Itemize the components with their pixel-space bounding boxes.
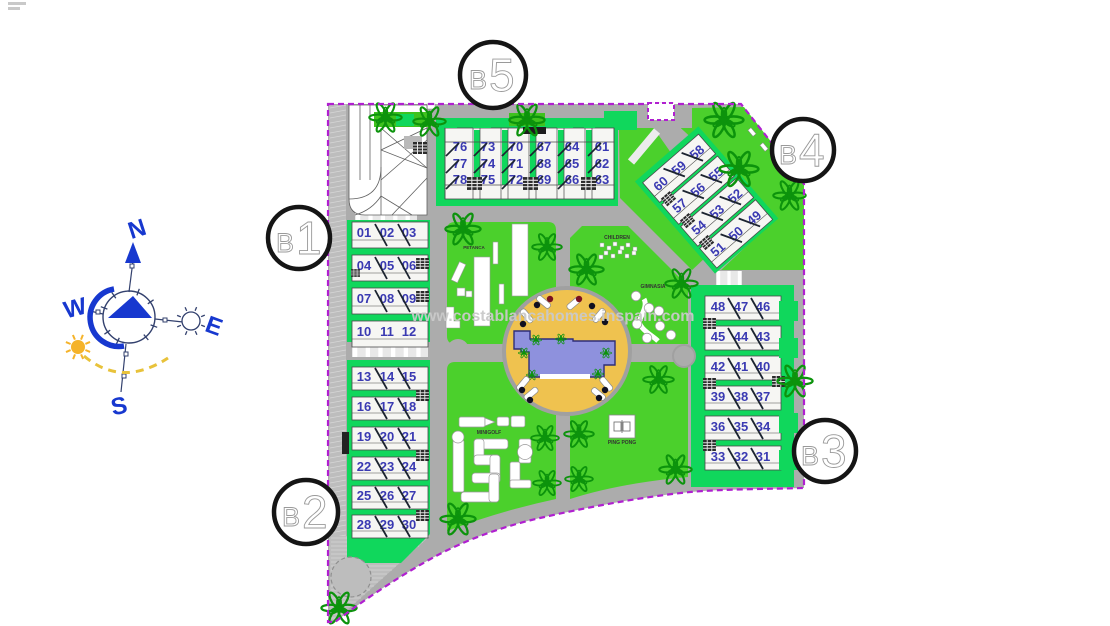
- svg-text:03: 03: [402, 225, 416, 240]
- svg-text:B: B: [801, 441, 819, 471]
- svg-text:48: 48: [711, 299, 725, 314]
- svg-text:01: 01: [357, 225, 371, 240]
- svg-text:5: 5: [489, 49, 515, 101]
- svg-text:4: 4: [799, 124, 825, 176]
- svg-text:PING PONG: PING PONG: [608, 440, 636, 446]
- svg-text:www.costablancahomes.inspain.c: www.costablancahomes.inspain.com: [410, 308, 694, 325]
- svg-text:33: 33: [711, 449, 725, 464]
- svg-text:B: B: [779, 140, 797, 170]
- svg-text:12: 12: [402, 324, 416, 339]
- svg-text:19: 19: [357, 429, 371, 444]
- svg-text:2: 2: [302, 486, 328, 538]
- svg-text:3: 3: [821, 425, 847, 477]
- svg-text:13: 13: [357, 369, 371, 384]
- svg-text:MINIGOLF: MINIGOLF: [477, 430, 501, 436]
- svg-text:B: B: [276, 228, 294, 258]
- svg-text:28: 28: [357, 517, 371, 532]
- svg-text:11: 11: [380, 324, 394, 339]
- svg-text:PETANCA: PETANCA: [463, 245, 485, 250]
- svg-text:22: 22: [357, 459, 371, 474]
- svg-text:CHILDREN: CHILDREN: [604, 235, 630, 241]
- svg-text:25: 25: [357, 488, 371, 503]
- svg-text:07: 07: [357, 291, 371, 306]
- svg-text:18: 18: [402, 399, 416, 414]
- svg-text:36: 36: [711, 419, 725, 434]
- svg-text:16: 16: [357, 399, 371, 414]
- svg-text:B: B: [469, 65, 487, 95]
- svg-text:06: 06: [402, 258, 416, 273]
- svg-text:39: 39: [711, 389, 725, 404]
- svg-text:21: 21: [402, 429, 416, 444]
- svg-text:1: 1: [296, 212, 322, 264]
- svg-text:27: 27: [402, 488, 416, 503]
- svg-text:B: B: [282, 502, 300, 532]
- svg-text:30: 30: [402, 517, 416, 532]
- svg-text:15: 15: [402, 369, 416, 384]
- svg-text:45: 45: [711, 329, 725, 344]
- svg-text:09: 09: [402, 291, 416, 306]
- svg-text:GIMNASIA: GIMNASIA: [641, 284, 666, 290]
- svg-text:24: 24: [402, 459, 417, 474]
- svg-text:42: 42: [711, 359, 725, 374]
- svg-text:10: 10: [357, 324, 371, 339]
